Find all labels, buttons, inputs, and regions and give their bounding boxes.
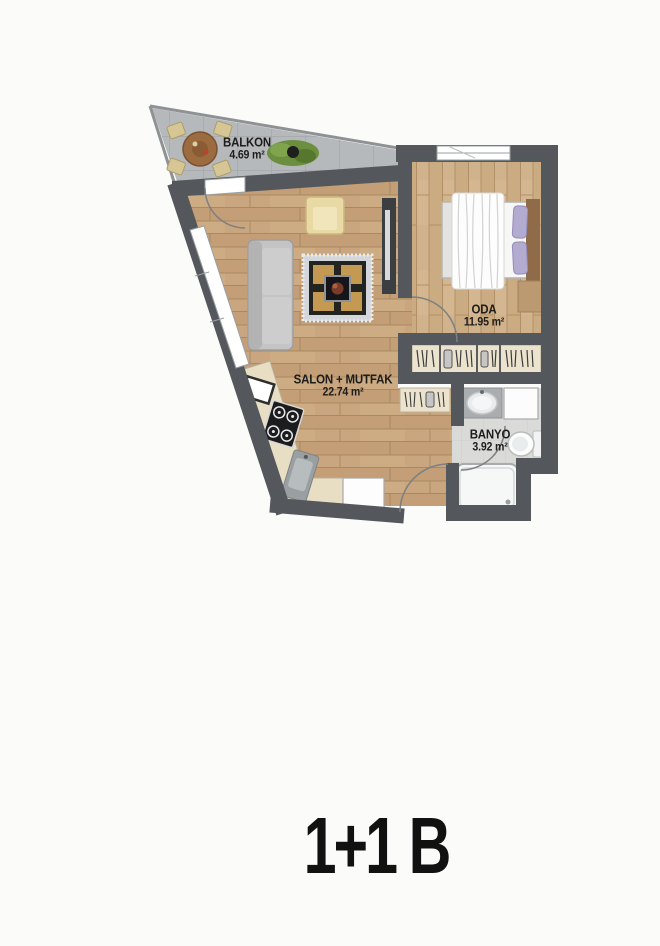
balcony-plant [267,140,319,166]
rug-and-coffee-table [303,255,372,321]
sofa [248,240,293,350]
bathroom-sink [462,388,502,418]
kitchen-appliance [343,478,384,508]
shower [456,464,518,512]
armchair [306,197,344,234]
tv-unit [382,198,396,294]
plan-type-title: 1+1 B [304,800,449,892]
floor-plan-page: BALKON 4.69 m² SALON + MUTFAK 22.74 m² O… [0,0,660,946]
bedroom-wardrobe [412,345,541,373]
washing-machine [504,388,538,419]
toilet [508,431,543,457]
hall-closet [400,388,450,412]
bed [442,193,540,289]
nightstand [518,281,543,312]
